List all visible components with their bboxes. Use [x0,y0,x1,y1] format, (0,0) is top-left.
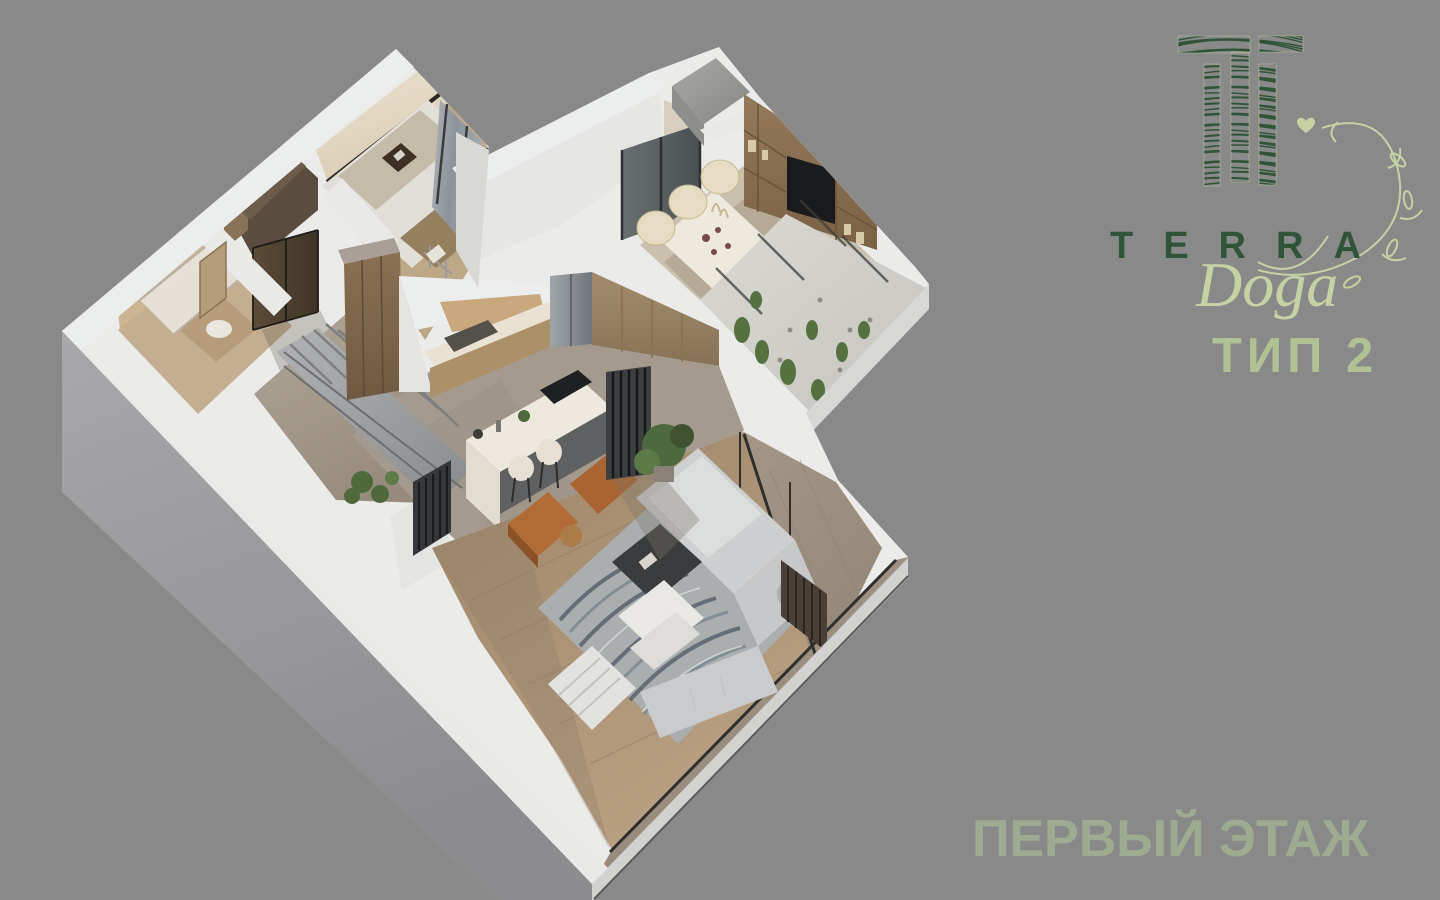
svg-text:ТИП 2: ТИП 2 [1212,329,1378,383]
svg-text:ПЕРВЫЙ ЭТАЖ: ПЕРВЫЙ ЭТАЖ [972,809,1370,868]
svg-text:Doga: Doga [1195,249,1338,320]
